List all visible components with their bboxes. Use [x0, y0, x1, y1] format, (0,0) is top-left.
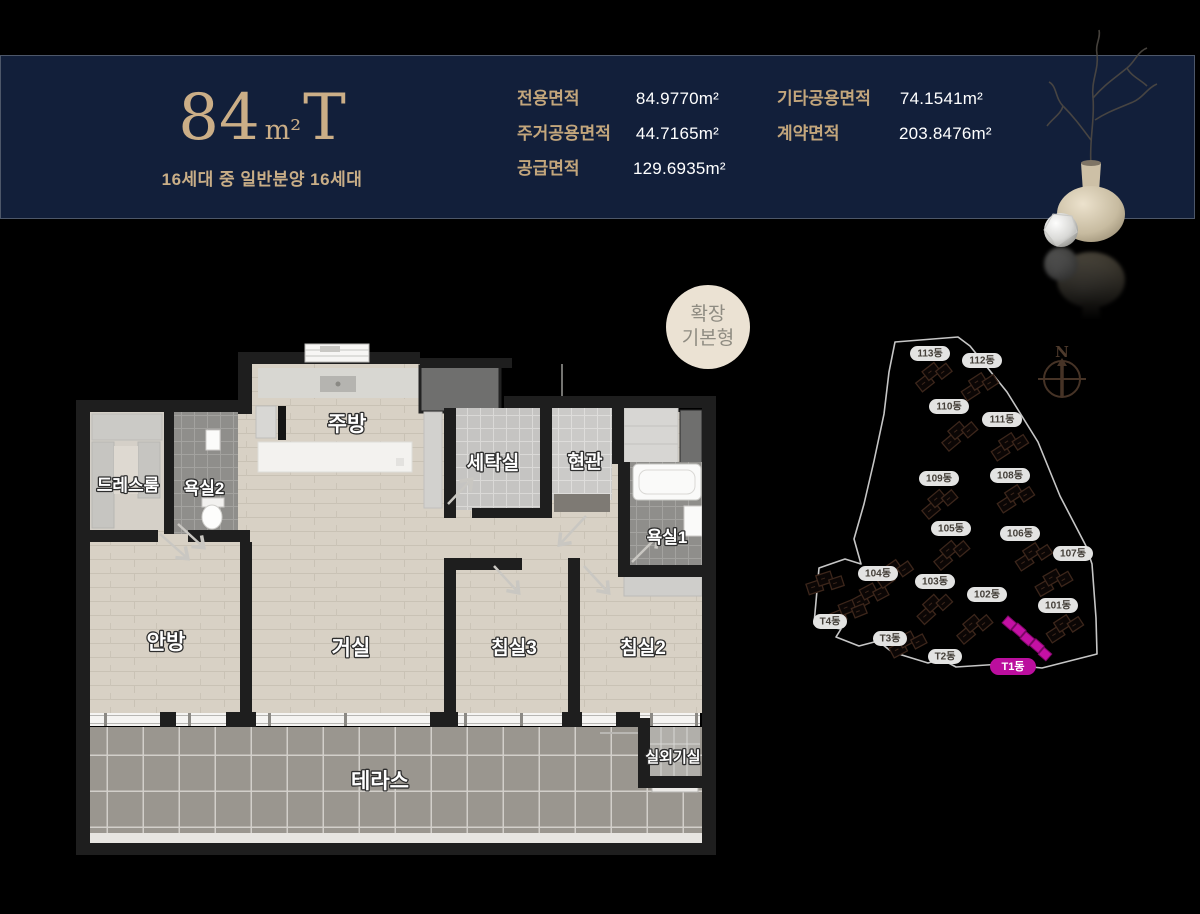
building-label: T2동	[935, 651, 956, 663]
wardrobe	[92, 414, 162, 440]
room-label-terrace: 테라스	[351, 770, 409, 793]
building-label: T1동	[1002, 660, 1025, 673]
building-label: 110동	[936, 401, 961, 413]
area-label: 주거공용면적	[517, 123, 633, 145]
kitchen-island	[258, 442, 412, 472]
area-row: 공급면적 129.6935m²	[517, 158, 719, 180]
room-label-kitchen: 주방	[328, 413, 367, 436]
building-pill: 108동	[990, 468, 1030, 483]
building-pill: 101동	[1038, 598, 1078, 613]
building-pill: 104동	[858, 566, 898, 581]
toilet	[202, 505, 222, 529]
building-pill-highlighted: T1동	[990, 658, 1036, 675]
polyhedron-icon	[1044, 213, 1078, 247]
room-label-dressroom: 드레스룸	[97, 476, 160, 495]
area-row: 기타공용면적 74.1541m²	[777, 88, 983, 110]
building-pill: 113동	[910, 346, 950, 361]
building-label: 113동	[917, 348, 942, 360]
building-label: 102동	[974, 589, 1000, 601]
sink	[206, 430, 220, 450]
unit-type-title: 84m²T	[117, 75, 407, 161]
building-pill: 112동	[962, 353, 1002, 368]
shoe-closet	[624, 408, 678, 464]
room-label-laundry: 세탁실	[467, 452, 519, 474]
area-row: 전용면적 84.9770m²	[517, 88, 719, 110]
room-label-entrance: 현관	[568, 451, 603, 473]
unit-size: 84	[178, 81, 259, 155]
window-band	[90, 713, 700, 726]
room-label-outdoor-unit: 실외기실	[645, 748, 700, 766]
building-pill: 105동	[931, 521, 971, 536]
building-label: 109동	[926, 473, 952, 485]
building-label: 112동	[969, 355, 994, 367]
room-label-bathroom2: 욕실2	[184, 479, 225, 498]
building-label: T4동	[820, 616, 841, 628]
area-value: 74.1541m²	[899, 88, 983, 110]
area-value: 203.8476m²	[899, 123, 983, 145]
building-pill: 109동	[919, 471, 959, 486]
area-label: 기타공용면적	[777, 88, 899, 110]
area-label: 공급면적	[517, 158, 633, 180]
site-boundary	[814, 337, 1097, 668]
building-label: 106동	[1007, 528, 1033, 540]
bathtub	[633, 464, 701, 500]
area-value: 84.9770m²	[633, 88, 719, 110]
unit-count-subtitle: 16세대 중 일반분양 16세대	[117, 165, 407, 190]
area-row: 계약면적 203.8476m²	[777, 123, 983, 145]
area-label: 계약면적	[777, 123, 899, 145]
building-pill: 107동	[1053, 546, 1093, 561]
floor-plan: 주방 세탁실 현관 드레스룸 욕실2 욕실1 안방 거실 침실3 침실2 실외기…	[60, 340, 720, 860]
building-pill: T4동	[813, 614, 847, 629]
unit-size-measure: m²	[265, 115, 301, 146]
building-pill: 103동	[915, 574, 955, 589]
room-label-living-room: 거실	[332, 637, 371, 660]
badge-line1: 확장	[691, 303, 726, 327]
area-info-column-1: 전용면적 84.9770m² 주거공용면적 44.7165m² 공급면적 129…	[517, 88, 719, 193]
building-pill: 102동	[967, 587, 1007, 602]
room-label-bathroom1: 욕실1	[647, 528, 688, 547]
building-pill: 111동	[982, 412, 1022, 427]
building-pill: 110동	[929, 399, 969, 414]
building-label: 101동	[1045, 600, 1071, 612]
building-pill: T2동	[928, 649, 962, 664]
building-label: 111동	[990, 414, 1015, 426]
building-label: 107동	[1060, 548, 1086, 560]
highlighted-building	[1002, 615, 1052, 661]
room-label-bedroom3: 침실3	[491, 637, 537, 659]
area-label: 전용면적	[517, 88, 633, 110]
area-row: 주거공용면적 44.7165m²	[517, 123, 719, 145]
building-label: 105동	[938, 523, 964, 535]
building-label: T3동	[880, 633, 901, 645]
site-plan: N 113동 112동 110동 111동 109동 108동 105동 106…	[795, 330, 1115, 690]
vase-decoration	[1035, 20, 1200, 320]
room-label-bedroom2: 침실2	[620, 637, 666, 659]
page: 84m²T 16세대 중 일반분양 16세대 전용면적 84.9770m² 주거…	[0, 0, 1200, 914]
building-pill: T3동	[873, 631, 907, 646]
entry-mat	[554, 494, 610, 512]
unit-type-suffix: T	[303, 81, 346, 155]
room-label-master-bedroom: 안방	[147, 631, 186, 654]
area-value: 44.7165m²	[633, 123, 719, 145]
building-label: 108동	[997, 470, 1023, 482]
building-label: 104동	[865, 568, 891, 580]
building-pill: 106동	[1000, 526, 1040, 541]
compass-icon: N	[1038, 343, 1086, 397]
area-value: 129.6935m²	[633, 158, 719, 180]
building-label: 103동	[922, 576, 948, 588]
branches-icon	[1047, 30, 1157, 165]
area-info-column-2: 기타공용면적 74.1541m² 계약면적 203.8476m²	[777, 88, 983, 158]
